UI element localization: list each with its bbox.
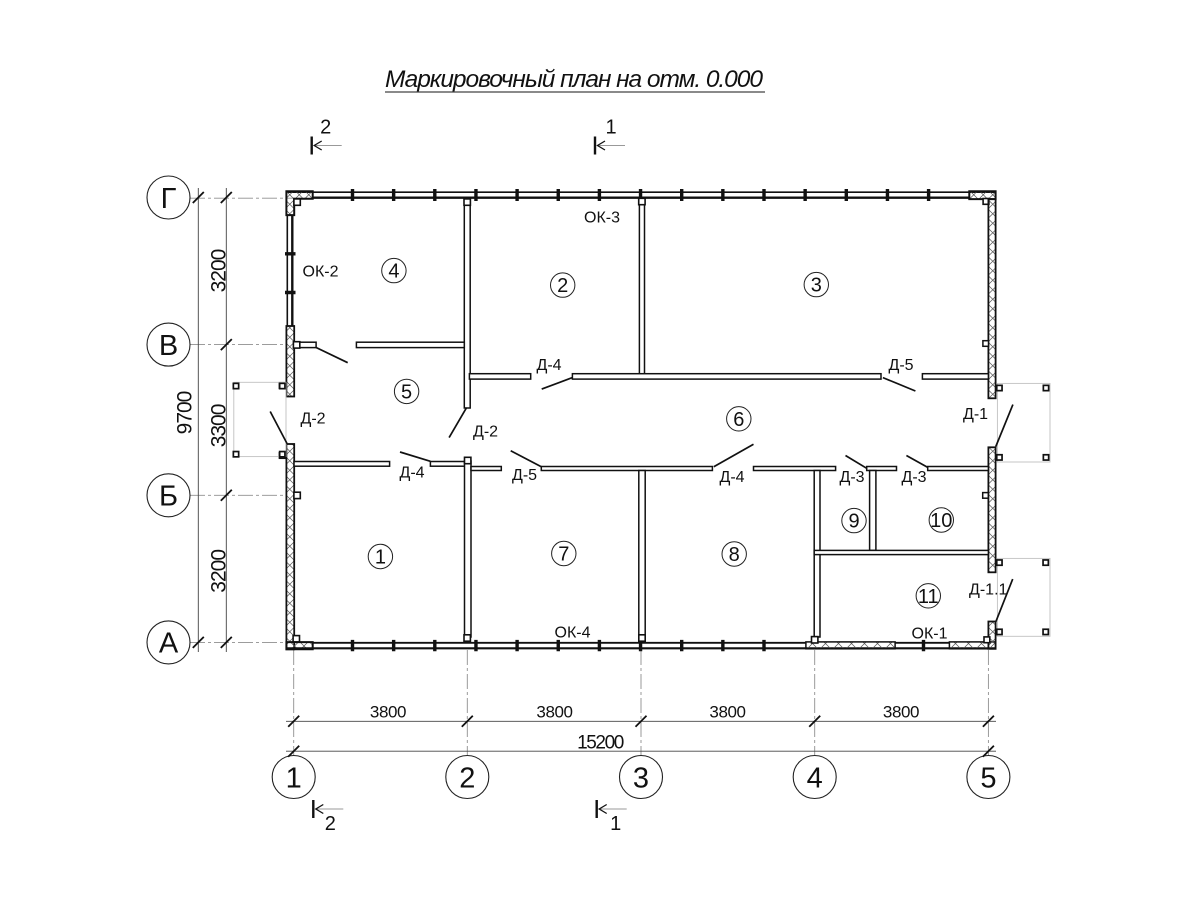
svg-text:8: 8 [729,544,740,566]
svg-text:1: 1 [375,547,386,569]
svg-text:Д-4: Д-4 [537,357,562,374]
svg-text:Д-3: Д-3 [840,469,865,486]
svg-text:3200: 3200 [207,550,230,593]
svg-text:Д-5: Д-5 [512,467,537,484]
svg-text:6: 6 [733,409,744,431]
svg-text:1: 1 [605,117,616,139]
svg-text:Д-5: Д-5 [889,357,914,374]
svg-text:3200: 3200 [207,249,230,292]
svg-text:2: 2 [320,117,331,139]
svg-text:Д-2: Д-2 [473,424,498,441]
svg-text:Д-4: Д-4 [720,469,745,486]
svg-text:Б: Б [159,481,178,513]
svg-text:А: А [159,628,179,660]
svg-text:3: 3 [811,275,822,297]
svg-text:Г: Г [161,183,177,215]
svg-text:Д-1: Д-1 [963,406,988,423]
svg-text:2: 2 [325,813,336,835]
svg-text:9700: 9700 [173,391,196,434]
svg-text:1: 1 [610,813,621,835]
svg-text:3800: 3800 [883,703,919,722]
svg-text:4: 4 [807,762,823,794]
svg-text:5: 5 [401,381,412,403]
svg-text:9: 9 [848,511,859,533]
svg-text:Д-1.1: Д-1.1 [969,582,1008,599]
svg-text:2: 2 [459,762,475,794]
svg-text:ОК-4: ОК-4 [555,625,591,642]
svg-text:3: 3 [633,762,649,794]
svg-text:Д-4: Д-4 [400,465,425,482]
svg-text:3800: 3800 [370,703,406,722]
svg-text:3800: 3800 [709,703,745,722]
svg-text:ОК-1: ОК-1 [912,626,948,643]
svg-text:2: 2 [557,275,568,297]
svg-text:Маркировочный план на отм. 0.0: Маркировочный план на отм. 0.000 [385,66,763,93]
svg-text:4: 4 [388,261,399,283]
svg-text:Д-2: Д-2 [301,411,326,428]
svg-text:Д-3: Д-3 [902,469,927,486]
svg-text:11: 11 [918,586,939,608]
svg-text:7: 7 [558,544,569,566]
svg-text:5: 5 [980,762,996,794]
svg-text:15200: 15200 [577,733,624,754]
svg-text:10: 10 [930,510,952,532]
svg-text:ОК-2: ОК-2 [303,264,339,281]
svg-text:3300: 3300 [207,404,230,447]
svg-text:ОК-3: ОК-3 [584,210,620,227]
svg-text:В: В [159,330,178,362]
svg-text:3800: 3800 [536,703,572,722]
svg-text:1: 1 [286,762,302,794]
